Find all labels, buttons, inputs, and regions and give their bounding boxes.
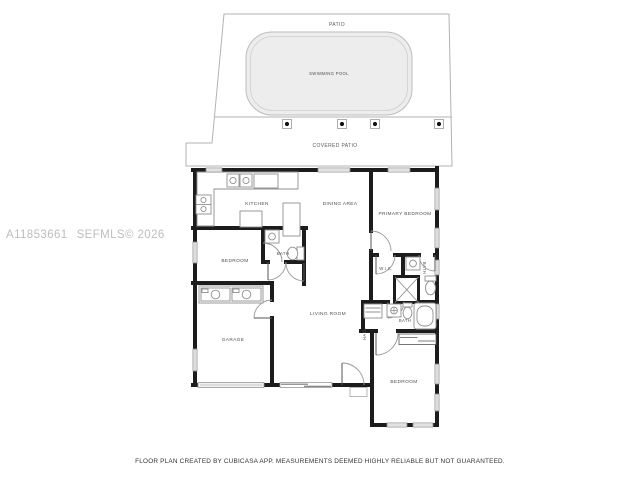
sliding-door [280,383,332,388]
floor-plan-page: A11853661SEFMLS© 2026 [0,0,640,480]
room-label-bedroom-left: BEDROOM [221,258,248,264]
room-label-garage: GARAGE [222,337,245,343]
bedroom2-closet [399,334,436,345]
room-label-bedroom-right: BEDROOM [390,379,417,385]
room-label-bath-ensuite: BATH [277,251,289,256]
floor-plan-drawing: PATIO SWIMMING POOL COVERED PATIO KITCHE… [0,0,640,480]
room-label-hall: HALL [362,328,367,340]
room-label-bath-hall: BATH [399,318,411,323]
room-label-wic: W.I.C. [379,266,393,271]
covered-patio-label: COVERED PATIO [313,143,358,149]
laundry-fixtures [199,286,263,303]
front-step [350,388,367,397]
swimming-pool-label: SWIMMING POOL [309,71,349,76]
garage-door [198,383,264,388]
room-label-primary-bedroom: PRIMARY BEDROOM [378,211,431,217]
patio-label: PATIO [329,22,345,28]
room-label-bath-primary: BATH [422,262,427,274]
room-label-dining-area: DINING AREA [323,201,358,207]
room-label-living-room: LIVING ROOM [310,311,346,317]
disclaimer-text: FLOOR PLAN CREATED BY CUBICASA APP. MEAS… [0,458,640,465]
shower-stall [395,277,419,303]
hall-bath-fixtures [364,303,436,329]
room-label-kitchen: KITCHEN [245,201,269,207]
